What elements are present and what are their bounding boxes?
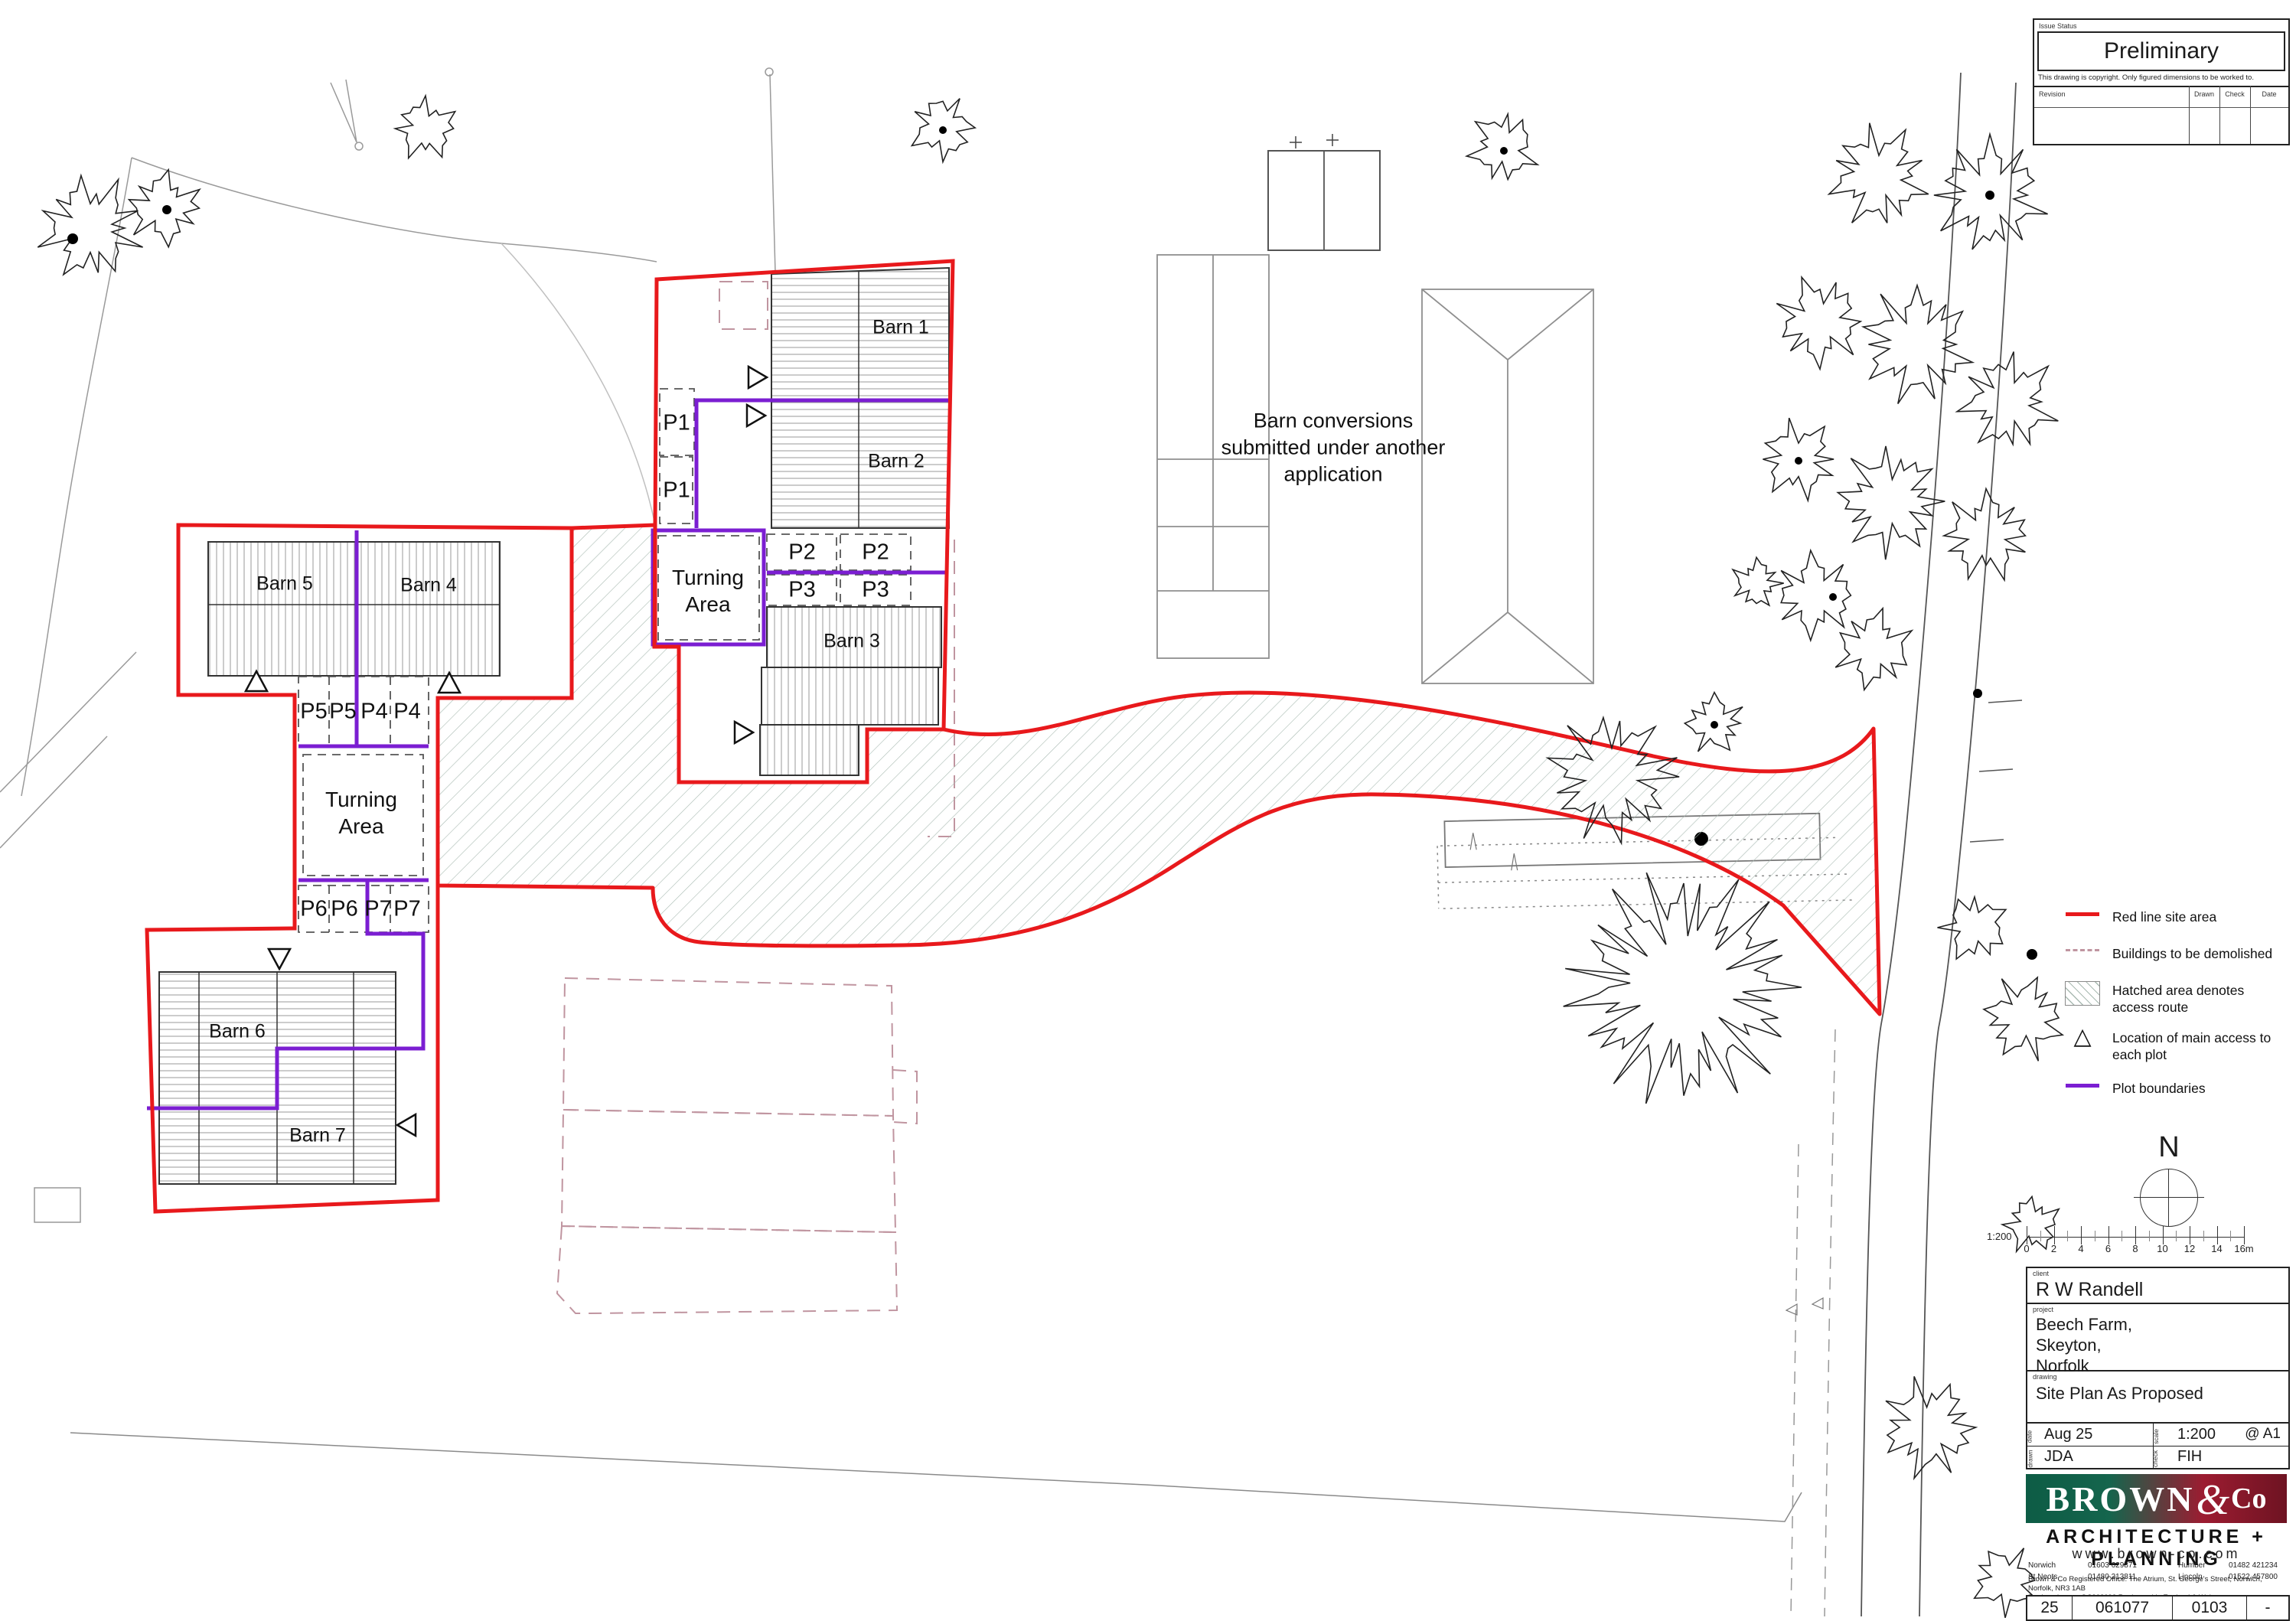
drawing-number-revision: - [2246,1597,2288,1619]
scale-tick-label: 12 [2184,1243,2195,1254]
scale-tick [2217,1226,2218,1244]
drawing-title: Site Plan As Proposed [2036,1384,2203,1404]
tree-icon [1864,285,1973,404]
scale-tick-label: 14 [2211,1243,2222,1254]
tree-icon [1829,123,1929,223]
scale-tick-label: 16m [2234,1243,2253,1254]
tree-trunk-dot [1829,593,1837,601]
scale-value: 1:200 [2177,1426,2216,1443]
tree-icon [38,175,142,274]
drawing-number-sheet: 0103 [2172,1597,2246,1619]
plot-p6-label: P6 [331,897,357,922]
plot-p6-label: P6 [300,897,327,922]
barn2-label: Barn 2 [868,451,925,473]
barn5-label: Barn 5 [256,573,313,595]
plot-p2-label: P2 [788,540,815,566]
tree-trunk-dot [1500,147,1508,155]
purple-line-swatch [2065,1084,2100,1088]
scale-tick-minor [2176,1231,2177,1241]
scale-tick [2190,1226,2190,1244]
north-compass-icon [2140,1169,2198,1227]
tree-icon [1466,114,1538,180]
scale-tick-minor [2095,1231,2095,1241]
date-column-label: Date [2250,90,2288,98]
tree-trunk-dot [1711,721,1718,729]
issue-status-block: Issue Status Preliminary This drawing is… [2033,18,2290,145]
drawn-value: JDA [2044,1448,2073,1466]
tree-trunk-dot [1985,191,1994,200]
tree-trunk-dot [939,126,947,134]
triangle-icon: △ [2065,1027,2100,1047]
scale-tick [2027,1226,2027,1244]
barn4-label: Barn 4 [400,575,457,597]
drawn-label: drawn [2027,1450,2034,1467]
scale-tick-minor [2149,1231,2150,1241]
dashed-line-swatch [2065,949,2100,951]
scale-tick-label: 4 [2078,1243,2083,1254]
tree-icon [1564,872,1802,1104]
scale-tick-label: 8 [2132,1243,2138,1254]
plot-p1-label: P1 [663,478,690,504]
drawing-number-year: 25 [2027,1597,2072,1619]
tree-icon [1733,557,1784,605]
firm-website: www.brown-co.com [2026,1546,2287,1562]
scale-tick-minor [2067,1231,2068,1241]
issue-status-label: Issue Status [2039,22,2077,30]
paper-size: @ A1 [2245,1426,2281,1443]
title-block: client R W Randell project Beech Farm, S… [2026,1267,2290,1469]
project-name: Beech Farm, Skeyton, Norfolk [2036,1315,2132,1376]
north-arrow: N [2132,1131,2206,1227]
tree-trunk-dot [67,233,78,244]
plot-p5-label: P5 [329,700,356,725]
check-column-label: Check [2219,90,2250,98]
tree-icon [1886,1376,1976,1478]
scale-tick-label: 2 [2051,1243,2056,1254]
tree-icon [1776,277,1861,369]
scale-bar: 1:200 0246810121416m [2027,1223,2249,1263]
scale-label: scale [2152,1429,2160,1444]
tree-icon [1781,550,1851,641]
scale-tick-label: 0 [2024,1243,2029,1254]
barn1-label: Barn 1 [872,317,929,339]
plot-p7-label: P7 [393,897,420,922]
tree-icon [395,96,455,158]
scale-tick-minor [2122,1231,2122,1241]
drawing-number-strip: 25 061077 0103 - [2026,1595,2290,1621]
scale-tick-minor [2203,1231,2204,1241]
scale-ratio: 1:200 [1987,1231,2012,1242]
plot-p3-label: P3 [788,578,815,603]
client-label: client [2033,1270,2049,1277]
scale-tick-minor [2230,1231,2231,1241]
plot-p5-label: P5 [300,700,327,725]
hatch-swatch [2065,981,2100,1006]
brown-co-logo: BROWN&Co [2026,1474,2287,1523]
scale-tick [2081,1226,2082,1244]
tree-icon [1944,489,2026,580]
plot-p1-label: P1 [663,411,690,436]
barn6-label: Barn 6 [209,1021,266,1043]
tree-icon [1835,608,1912,690]
site-plan-sheet: { "issue_block": { "label": "Issue Statu… [0,0,2296,1621]
plot-p2-label: P2 [862,540,889,566]
plot-p4-label: P4 [360,700,387,725]
barn-conversion-note: Barn conversions submitted under another… [1218,407,1448,488]
copyright-note: This drawing is copyright. Only figured … [2038,73,2254,82]
tree-trunk-dot [162,205,171,214]
check-value: FIH [2177,1448,2202,1466]
check-label: check [2151,1450,2159,1467]
scale-tick-label: 6 [2105,1243,2111,1254]
drawing-label: drawing [2033,1373,2057,1381]
scale-tick-label: 10 [2157,1243,2167,1254]
issue-status-value: Preliminary [2037,31,2285,71]
scale-tick [2108,1226,2109,1244]
scale-tick-minor [2040,1231,2041,1241]
project-label: project [2033,1306,2053,1313]
red-line-swatch [2065,912,2100,916]
tree-icon [1984,977,2063,1061]
tree-trunk-dot [1973,689,1982,698]
plot-p3-label: P3 [862,578,889,603]
turning-area-label-top: Turning Area [654,564,762,618]
scale-tick [2135,1226,2136,1244]
scale-tick [2163,1226,2164,1244]
turning-area-label-left: Turning Area [308,786,415,840]
date-label: date [2025,1430,2033,1443]
north-label: N [2132,1131,2206,1164]
drawn-column-label: Drawn [2189,90,2219,98]
tree-trunk-dot [2027,949,2037,960]
revision-column-label: Revision [2039,90,2066,98]
date-value: Aug 25 [2044,1426,2092,1443]
barn3-label: Barn 3 [823,631,880,653]
client-name: R W Randell [2036,1279,2143,1301]
scale-tick [2054,1226,2055,1244]
tree-icon [1938,897,2006,959]
tree-icon [1957,352,2058,445]
tree-icon [1838,446,1945,559]
plot-p4-label: P4 [393,700,420,725]
plot-p7-label: P7 [364,897,391,922]
barn7-label: Barn 7 [289,1125,346,1147]
scale-tick [2244,1226,2245,1244]
tree-trunk-dot [1795,457,1802,465]
drawing-number-project: 061077 [2072,1597,2172,1619]
